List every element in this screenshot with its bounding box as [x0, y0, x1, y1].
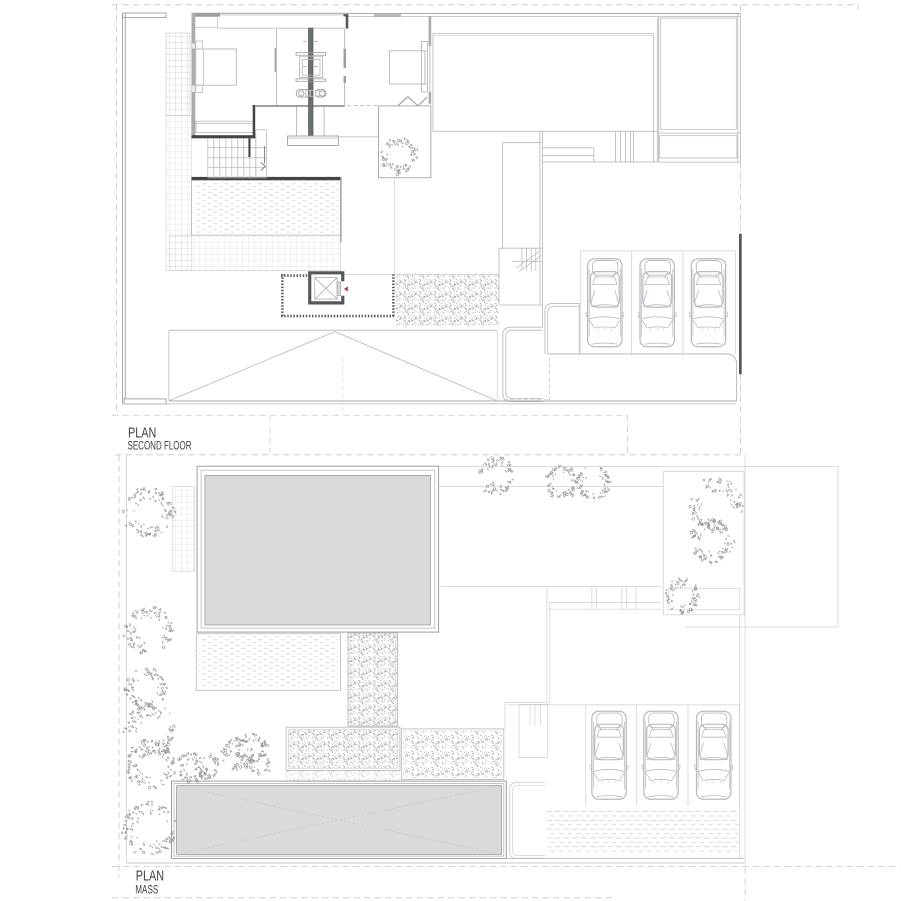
svg-text:SECOND FLOOR: SECOND FLOOR	[128, 439, 192, 453]
svg-text:MASS: MASS	[135, 883, 158, 897]
